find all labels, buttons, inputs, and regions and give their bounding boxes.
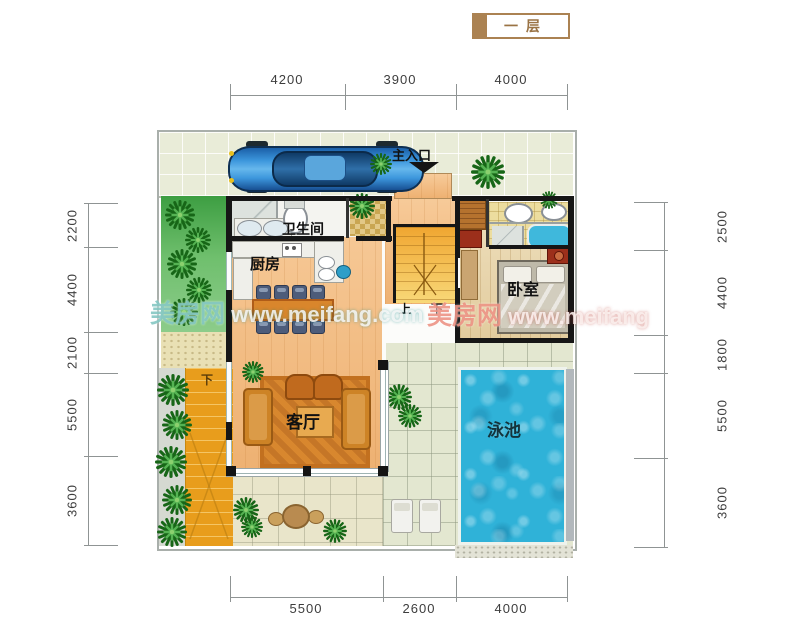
bedroom-door-panel: [461, 250, 478, 300]
dim-tick: [84, 332, 118, 333]
patio-table: [282, 504, 310, 529]
ensuite-sink: [504, 203, 533, 224]
watermark-brand: 美房网: [150, 300, 225, 328]
burner: [292, 246, 296, 250]
dim-label-right-3: 1800: [715, 323, 730, 387]
dim-label-right-2: 4400: [715, 261, 730, 325]
interior-stairs-marks: [396, 227, 452, 299]
palm-tree-icon: [323, 519, 347, 543]
watermark-url: www.meifang: [502, 304, 649, 329]
wall-left-a: [226, 196, 232, 252]
armchair: [285, 374, 315, 400]
palm-tree-icon: [242, 361, 264, 383]
dim-label-right-4: 5500: [715, 384, 730, 448]
dim-tick: [634, 202, 668, 203]
dim-tick: [634, 547, 668, 548]
floor-tag: 一层: [472, 13, 570, 39]
palm-tree-icon: [157, 517, 187, 547]
toilet-tank: [284, 200, 305, 209]
kitchen-basin: [336, 265, 351, 279]
dim-tick: [634, 250, 668, 251]
car-roof: [304, 155, 346, 181]
label-pool: 泳池: [487, 416, 521, 441]
wall-hall-bedroom-a: [455, 196, 460, 258]
pool-wall: [566, 369, 574, 541]
palm-tree-icon: [241, 516, 263, 538]
label-kitchen: 厨房: [250, 253, 280, 274]
watermark-url: www.meifang.com: [225, 302, 423, 327]
pool-lounger: [391, 499, 413, 533]
pillow: [536, 266, 565, 283]
palm-tree-icon: [162, 485, 192, 515]
dim-label-top-1: 4200: [255, 72, 319, 87]
dim-tick: [634, 373, 668, 374]
entrance-arrow-icon: [409, 162, 439, 173]
headlight: [229, 151, 234, 156]
dim-label-top-2: 3900: [368, 72, 432, 87]
dim-tick: [230, 84, 231, 110]
palm-tree-icon: [155, 446, 187, 478]
outdoor-stairs-cross: [187, 430, 231, 542]
wall-ensuite-bottom: [489, 245, 572, 249]
watermark: 美房网 www.meifang: [427, 296, 649, 332]
wall-bath-right: [386, 196, 391, 242]
sofa-right: [341, 388, 371, 450]
palm-tree-icon: [165, 200, 195, 230]
kitchen-sink: [318, 268, 335, 281]
burner: [285, 246, 289, 250]
pool-lounger: [419, 499, 441, 533]
wall-bath-wc: [346, 198, 349, 238]
closet: [459, 197, 486, 230]
wall-post: [226, 466, 236, 476]
palm-tree-icon: [471, 155, 505, 189]
dim-label-bottom-3: 4000: [479, 601, 543, 616]
window: [226, 362, 232, 422]
dim-label-left-1: 2200: [65, 194, 80, 258]
dim-label-left-4: 5500: [65, 383, 80, 447]
dim-tick: [456, 84, 457, 110]
dim-tick: [84, 545, 118, 546]
dim-label-left-3: 2100: [65, 321, 80, 385]
dim-tick: [230, 576, 231, 602]
dim-tick: [345, 84, 346, 110]
dim-label-left-5: 3600: [65, 469, 80, 533]
dim-tick: [84, 247, 118, 248]
watermark: 美房网 www.meifang.com: [150, 294, 423, 330]
dim-line-top: [230, 95, 567, 96]
dim-tick: [634, 335, 668, 336]
stove: [282, 243, 302, 257]
chair-cushion: [554, 251, 564, 261]
watermark-brand: 美房网: [427, 302, 502, 330]
dim-label-right-5: 3600: [715, 471, 730, 535]
dim-label-bottom-1: 5500: [274, 601, 338, 616]
dim-label-bottom-2: 2600: [387, 601, 451, 616]
wall-left-c: [226, 422, 232, 440]
sink: [237, 220, 262, 237]
window: [226, 440, 232, 468]
floor-plan-page: 一层 4200 3900 4000 5500 2600 4000 2200 44…: [0, 0, 800, 627]
dim-tick: [383, 576, 384, 602]
dim-line-right: [664, 202, 665, 547]
ensuite-shower: [492, 226, 524, 245]
swimming-pool: [458, 367, 567, 545]
wall-ensuite-divider: [489, 222, 568, 224]
dim-tick: [84, 456, 118, 457]
glass-door-east: [380, 362, 389, 472]
palm-tree-icon: [157, 374, 189, 406]
armchair: [313, 374, 343, 400]
wall-post: [378, 466, 388, 476]
pool-paving: [455, 545, 573, 558]
palm-tree-icon: [398, 404, 422, 428]
dim-tick: [84, 373, 118, 374]
palm-tree-icon: [370, 153, 392, 175]
patio-chair: [308, 510, 324, 524]
dim-line-left: [88, 203, 89, 545]
palm-tree-icon: [167, 249, 197, 279]
label-garden-stair-down: 下: [201, 371, 213, 388]
sofa-left: [243, 388, 273, 446]
wall-bedroom-bottom: [455, 338, 574, 343]
dim-label-left-2: 4400: [65, 258, 80, 322]
palm-tree-icon: [162, 410, 192, 440]
dim-tick: [567, 84, 568, 110]
wall-top-right: [452, 196, 574, 201]
wall-post: [303, 466, 311, 476]
label-living-room: 客厅: [286, 408, 320, 433]
wall-post: [378, 360, 388, 370]
dim-label-right-1: 2500: [715, 195, 730, 259]
label-bathroom: 卫生间: [282, 219, 324, 239]
floor-tag-block: [474, 15, 487, 37]
floor-tag-label: 一层: [494, 16, 548, 36]
dim-tick: [567, 576, 568, 602]
dim-label-top-3: 4000: [479, 72, 543, 87]
dim-tick: [456, 576, 457, 602]
headlight: [229, 178, 234, 183]
sand-patch: [161, 332, 226, 368]
window: [226, 252, 232, 290]
wall-top-left: [226, 196, 392, 201]
dim-tick: [84, 203, 118, 204]
dim-line-bottom: [230, 597, 567, 598]
dim-tick: [634, 458, 668, 459]
dresser: [459, 230, 482, 248]
